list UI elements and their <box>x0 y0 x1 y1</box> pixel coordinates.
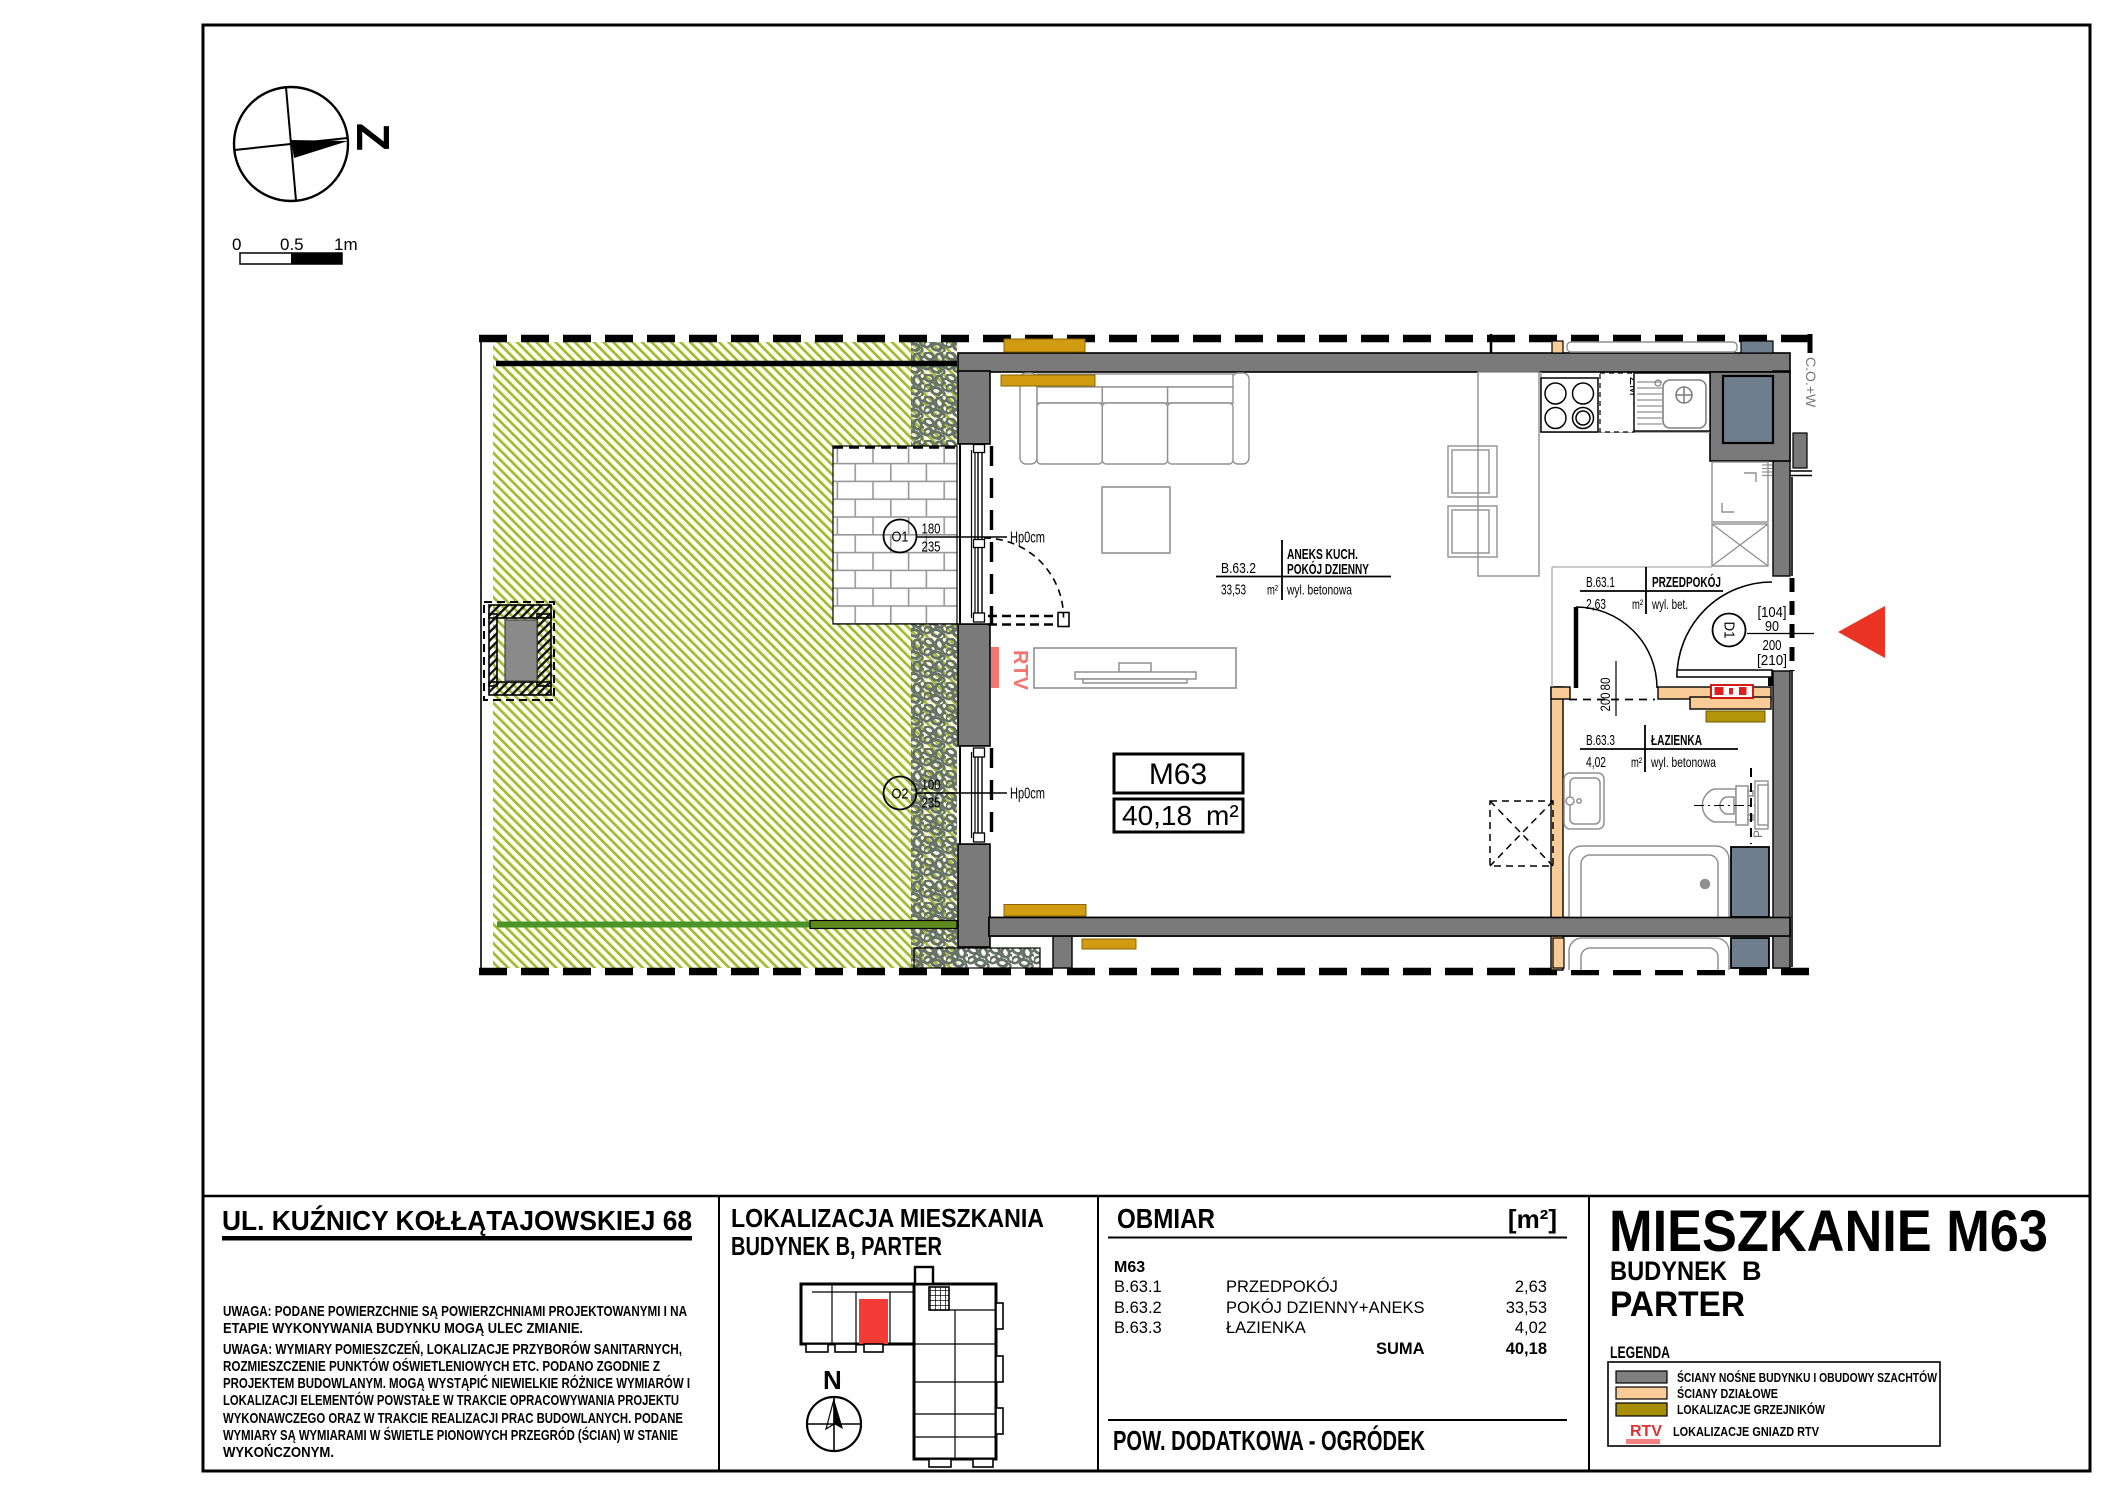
svg-text:235: 235 <box>922 795 941 812</box>
svg-text:LOKALIZACJE GRZEJNIKÓW: LOKALIZACJE GRZEJNIKÓW <box>1677 1402 1826 1417</box>
svg-text:PARTER: PARTER <box>1610 1285 1745 1324</box>
svg-text:SUMA: SUMA <box>1376 1340 1425 1358</box>
svg-text:POW. DODATKOWA - OGRÓDEK: POW. DODATKOWA - OGRÓDEK <box>1113 1425 1425 1456</box>
svg-text:4,02: 4,02 <box>1515 1319 1547 1337</box>
svg-text:C.O.+W: C.O.+W <box>1803 357 1819 408</box>
svg-text:B.63.3: B.63.3 <box>1586 732 1615 749</box>
svg-text:B.63.2: B.63.2 <box>1114 1299 1162 1317</box>
svg-text:WYKONAWCZEGO ORAZ W TRAKCIE RE: WYKONAWCZEGO ORAZ W TRAKCIE REALIZACJI P… <box>223 1410 683 1427</box>
svg-text:ŚCIANY NOŚNE BUDYNKU I OBUDOWY: ŚCIANY NOŚNE BUDYNKU I OBUDOWY SZACHTÓW <box>1677 1370 1938 1385</box>
svg-text:RTV: RTV <box>1630 1423 1662 1440</box>
svg-text:ŁAZIENKA: ŁAZIENKA <box>1651 732 1702 749</box>
svg-text:M63: M63 <box>1149 758 1207 791</box>
svg-text:[210]: [210] <box>1757 652 1787 669</box>
svg-text:M63: M63 <box>1114 1259 1145 1276</box>
svg-text:LOKALIZACJE GNIAZD RTV: LOKALIZACJE GNIAZD RTV <box>1673 1424 1819 1439</box>
svg-text:WYKOŃCZONYM.: WYKOŃCZONYM. <box>223 1444 334 1461</box>
svg-text:OBMIAR: OBMIAR <box>1117 1203 1215 1234</box>
svg-text:wyl. betonowa: wyl. betonowa <box>1650 754 1716 770</box>
svg-text:Hp0cm: Hp0cm <box>1010 786 1045 803</box>
svg-text:POKÓJ DZIENNY: POKÓJ DZIENNY <box>1287 560 1369 578</box>
svg-text:B.63.2: B.63.2 <box>1221 560 1256 577</box>
svg-text:wyl. betonowa: wyl. betonowa <box>1286 582 1352 598</box>
svg-text:wyl. bet.: wyl. bet. <box>1651 596 1688 612</box>
svg-text:PRZEDPOKÓJ: PRZEDPOKÓJ <box>1226 1277 1338 1296</box>
svg-text:180: 180 <box>922 521 941 538</box>
svg-text:40,18: 40,18 <box>1122 800 1192 831</box>
svg-text:PROJEKTEM BUDOWLANYM. MOGĄ WYS: PROJEKTEM BUDOWLANYM. MOGĄ WYSTĄPIĆ NIEW… <box>223 1374 690 1392</box>
svg-text:ETAPIE WYKONYWANIA BUDYNKU MOG: ETAPIE WYKONYWANIA BUDYNKU MOGĄ ULEC ZMI… <box>223 1320 583 1337</box>
svg-text:PRZEDPOKÓJ: PRZEDPOKÓJ <box>1652 573 1721 591</box>
svg-text:D1: D1 <box>1721 622 1738 639</box>
svg-text:2,63: 2,63 <box>1515 1278 1547 1296</box>
svg-text:80: 80 <box>1597 677 1613 690</box>
svg-text:WYMIARY SĄ WYMIARAMI W ŚWIETLE: WYMIARY SĄ WYMIARAMI W ŚWIETLE PIONOWYCH… <box>223 1426 678 1444</box>
svg-text:m²: m² <box>1632 596 1643 612</box>
svg-text:O1: O1 <box>892 529 909 546</box>
svg-text:BUDYNEK: BUDYNEK <box>1610 1256 1727 1286</box>
svg-text:N: N <box>823 1365 842 1395</box>
svg-text:BUDYNEK B, PARTER: BUDYNEK B, PARTER <box>731 1231 942 1261</box>
svg-text:33,53: 33,53 <box>1221 582 1246 599</box>
svg-text:UL. KUŹNICY KOŁŁĄTAJOWSKIEJ 68: UL. KUŹNICY KOŁŁĄTAJOWSKIEJ 68 <box>222 1205 692 1236</box>
svg-text:0: 0 <box>232 235 241 254</box>
svg-text:RTV: RTV <box>1009 650 1031 691</box>
svg-text:0.5: 0.5 <box>280 235 304 254</box>
svg-text:LOKALIZACJI ELEMENTÓW POWSTAŁE: LOKALIZACJI ELEMENTÓW POWSTAŁE W TRAKCIE… <box>223 1391 679 1409</box>
svg-text:100: 100 <box>922 777 941 794</box>
svg-text:33,53: 33,53 <box>1506 1299 1547 1317</box>
svg-text:O2: O2 <box>892 786 909 803</box>
svg-text:1m: 1m <box>334 235 358 254</box>
svg-text:ROZMIESZCZENIE PUNKTÓW OŚWIETL: ROZMIESZCZENIE PUNKTÓW OŚWIETLENIOWYCH E… <box>223 1357 660 1375</box>
svg-text:B.63.1: B.63.1 <box>1114 1278 1162 1296</box>
svg-text:B.63.1: B.63.1 <box>1586 574 1615 591</box>
svg-text:2,63: 2,63 <box>1586 596 1606 613</box>
svg-text:40,18: 40,18 <box>1506 1340 1547 1358</box>
svg-text:235: 235 <box>922 539 941 556</box>
svg-text:4,02: 4,02 <box>1586 754 1606 771</box>
svg-text:Hp0cm: Hp0cm <box>1010 530 1045 547</box>
svg-text:MIESZKANIE M63: MIESZKANIE M63 <box>1609 1199 2048 1264</box>
svg-text:m²: m² <box>1631 754 1642 770</box>
svg-text:200: 200 <box>1597 692 1613 711</box>
svg-text:LOKALIZACJA MIESZKANIA: LOKALIZACJA MIESZKANIA <box>731 1203 1044 1233</box>
svg-text:B.63.3: B.63.3 <box>1114 1319 1162 1337</box>
svg-text:ŁAZIENKA: ŁAZIENKA <box>1226 1319 1306 1337</box>
svg-text:P: P <box>1751 830 1765 838</box>
svg-text:UWAGA: PODANE POWIERZCHNIE SĄ: UWAGA: PODANE POWIERZCHNIE SĄ POWIERZCHN… <box>223 1303 687 1320</box>
svg-text:m²: m² <box>1267 582 1278 598</box>
svg-text:Z: Z <box>347 123 399 151</box>
svg-text:B: B <box>1742 1256 1762 1286</box>
svg-text:m²: m² <box>1206 800 1239 831</box>
svg-text:[m²]: [m²] <box>1508 1204 1557 1234</box>
svg-text:LEGENDA: LEGENDA <box>1610 1343 1670 1362</box>
svg-text:POKÓJ DZIENNY+ANEKS: POKÓJ DZIENNY+ANEKS <box>1226 1298 1425 1317</box>
svg-text:ŚCIANY DZIAŁOWE: ŚCIANY DZIAŁOWE <box>1677 1386 1778 1401</box>
svg-text:UWAGA: WYMIARY POMIESZCZEŃ, LO: UWAGA: WYMIARY POMIESZCZEŃ, LOKALIZACJE … <box>223 1340 682 1358</box>
svg-text:90: 90 <box>1765 618 1779 635</box>
